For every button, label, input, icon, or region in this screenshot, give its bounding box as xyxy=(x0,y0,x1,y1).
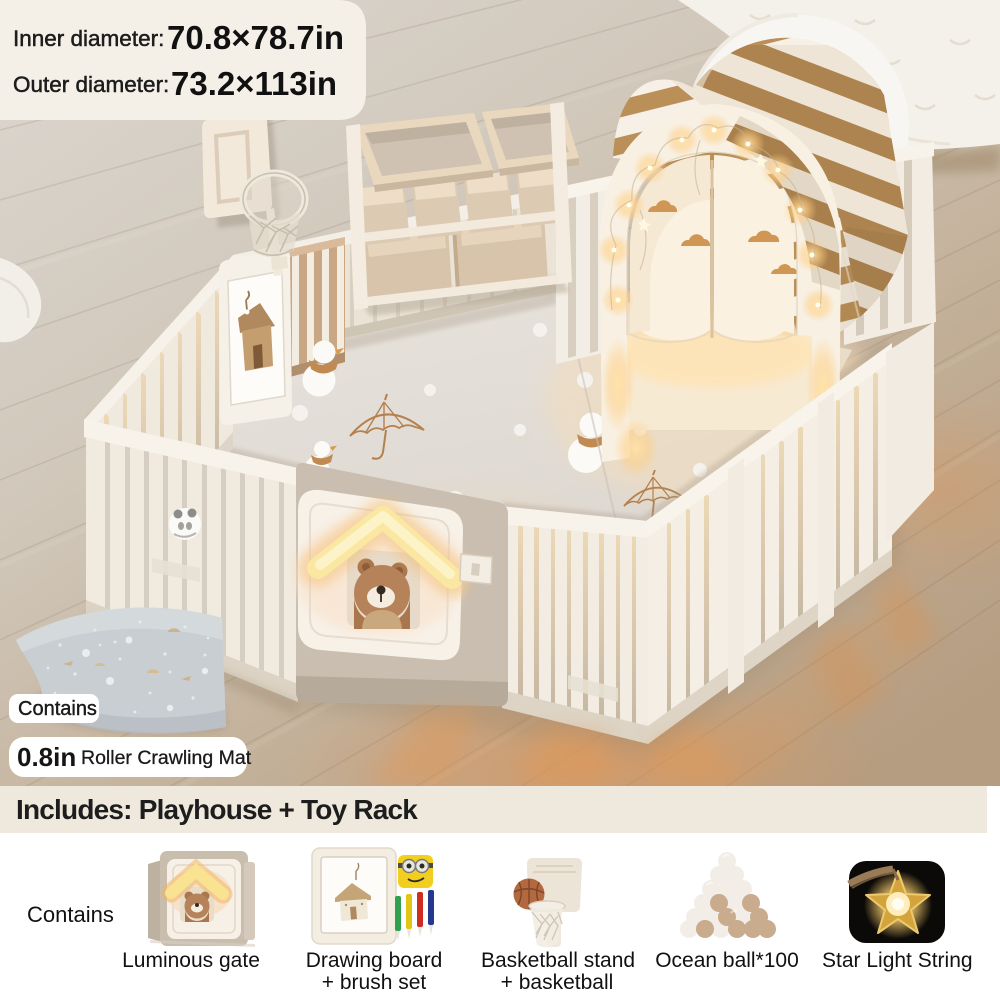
svg-text:Outer diameter:: Outer diameter: xyxy=(13,72,169,97)
svg-text:Inner diameter:: Inner diameter: xyxy=(13,26,164,51)
svg-text:Roller Crawling Mat: Roller Crawling Mat xyxy=(81,747,252,769)
svg-text:70.8×78.7in: 70.8×78.7in xyxy=(167,19,344,56)
svg-text:73.2×113in: 73.2×113in xyxy=(171,65,337,102)
svg-text:0.8in: 0.8in xyxy=(17,742,76,772)
svg-text:Contains: Contains xyxy=(18,698,97,720)
